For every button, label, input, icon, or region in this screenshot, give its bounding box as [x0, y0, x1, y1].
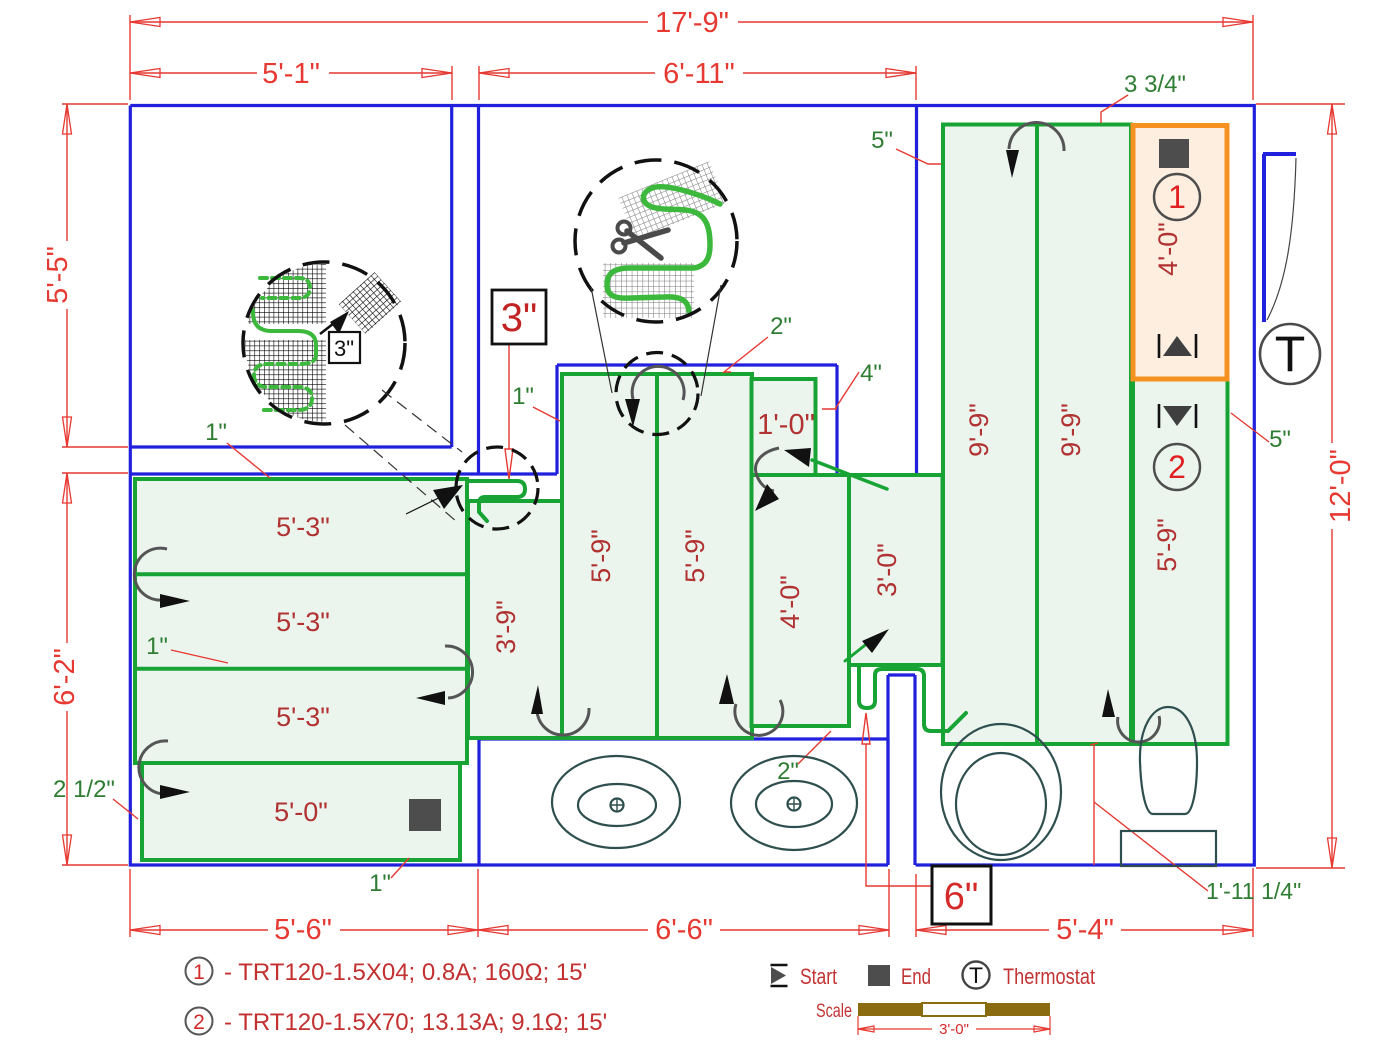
svg-text:5'-9": 5'-9"	[1152, 518, 1182, 572]
svg-text:5'-9": 5'-9"	[586, 529, 616, 583]
svg-text:9'-9": 9'-9"	[964, 403, 994, 457]
svg-text:2": 2"	[770, 313, 792, 340]
svg-text:4'-0": 4'-0"	[1153, 222, 1183, 276]
svg-text:T: T	[969, 963, 983, 988]
svg-text:5'-5": 5'-5"	[42, 246, 74, 304]
svg-text:17'-9": 17'-9"	[655, 7, 729, 39]
svg-text:5": 5"	[871, 127, 893, 154]
svg-text:6'-2": 6'-2"	[49, 648, 81, 706]
svg-text:1": 1"	[369, 870, 391, 897]
svg-text:2: 2	[193, 1011, 205, 1034]
svg-text:6'-11": 6'-11"	[663, 58, 735, 90]
svg-text:1: 1	[1168, 179, 1186, 215]
svg-text:3'-0": 3'-0"	[872, 543, 902, 597]
svg-text:T: T	[1275, 326, 1306, 382]
svg-text:5'-3": 5'-3"	[276, 702, 330, 732]
svg-text:Thermostat: Thermostat	[1003, 964, 1095, 989]
svg-text:9'-9": 9'-9"	[1056, 403, 1086, 457]
svg-text:Start: Start	[800, 964, 837, 989]
svg-text:3'-0": 3'-0"	[939, 1021, 969, 1038]
svg-text:1": 1"	[146, 633, 168, 660]
svg-text:1": 1"	[205, 419, 227, 446]
svg-text:1'-0": 1'-0"	[757, 409, 815, 441]
svg-text:1: 1	[193, 961, 205, 984]
svg-text:- TRT120-1.5X70; 13.13A; 9.1Ω;: - TRT120-1.5X70; 13.13A; 9.1Ω; 15'	[224, 1009, 607, 1036]
svg-text:5'-3": 5'-3"	[276, 512, 330, 542]
svg-text:3": 3"	[334, 336, 354, 361]
svg-text:Scale: Scale	[816, 1001, 852, 1022]
svg-text:3'-9": 3'-9"	[491, 600, 521, 654]
svg-text:5'-9": 5'-9"	[680, 529, 710, 583]
svg-text:4'-0": 4'-0"	[775, 575, 805, 629]
svg-text:2 1/2": 2 1/2"	[53, 776, 115, 803]
svg-text:1'-11 1/4": 1'-11 1/4"	[1206, 878, 1301, 904]
svg-text:3 3/4": 3 3/4"	[1124, 71, 1186, 98]
svg-text:3": 3"	[501, 296, 537, 340]
svg-text:5'-6": 5'-6"	[274, 914, 332, 946]
svg-text:2: 2	[1168, 449, 1186, 485]
svg-text:6'-6": 6'-6"	[655, 914, 713, 946]
svg-text:1": 1"	[512, 383, 534, 410]
svg-text:5'-1": 5'-1"	[262, 58, 320, 90]
svg-text:6": 6"	[944, 876, 979, 918]
svg-text:4": 4"	[860, 360, 882, 387]
svg-text:- TRT120-1.5X04; 0.8A; 160Ω; 1: - TRT120-1.5X04; 0.8A; 160Ω; 15'	[224, 959, 587, 986]
svg-text:End: End	[901, 964, 931, 989]
svg-text:5'-4": 5'-4"	[1056, 914, 1114, 946]
svg-text:5'-3": 5'-3"	[276, 607, 330, 637]
svg-text:12'-0": 12'-0"	[1325, 449, 1357, 523]
svg-text:5": 5"	[1269, 426, 1291, 453]
svg-text:5'-0": 5'-0"	[274, 797, 328, 827]
